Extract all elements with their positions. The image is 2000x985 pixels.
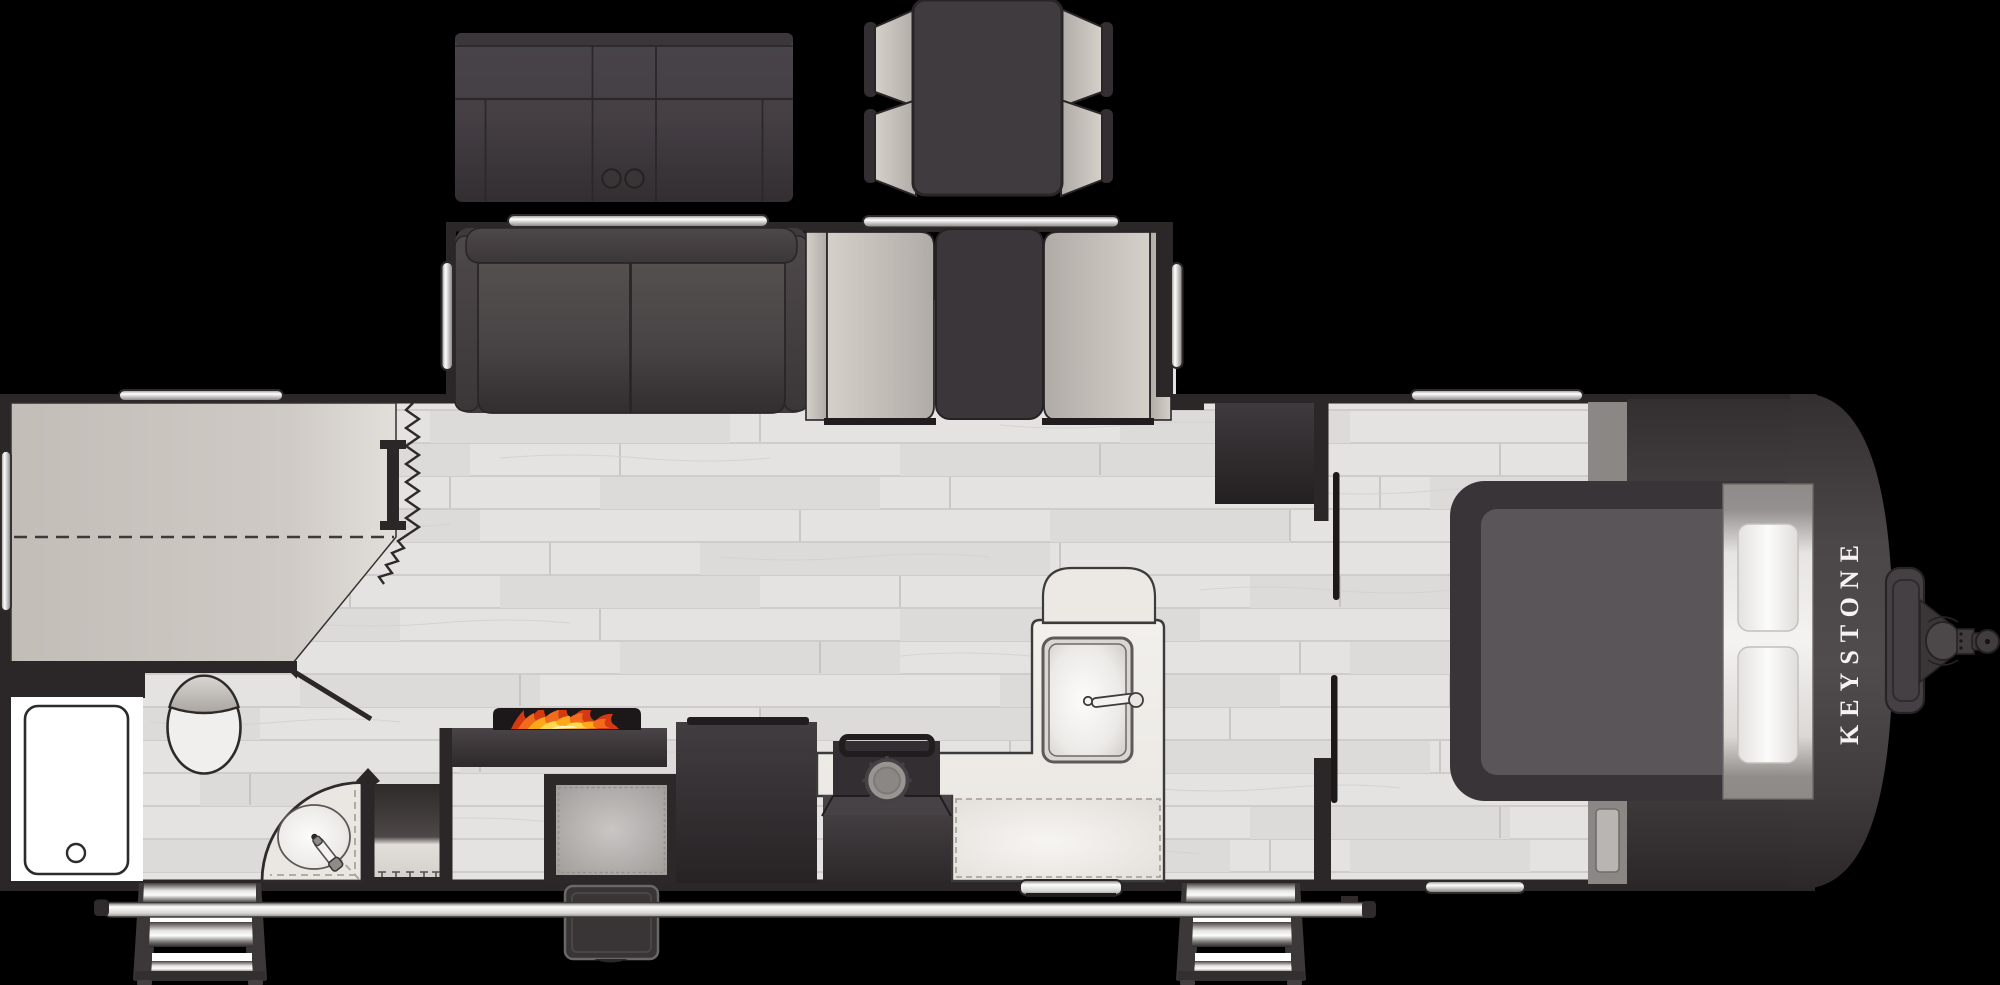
svg-text:KEYSTONE: KEYSTONE bbox=[1835, 537, 1864, 745]
